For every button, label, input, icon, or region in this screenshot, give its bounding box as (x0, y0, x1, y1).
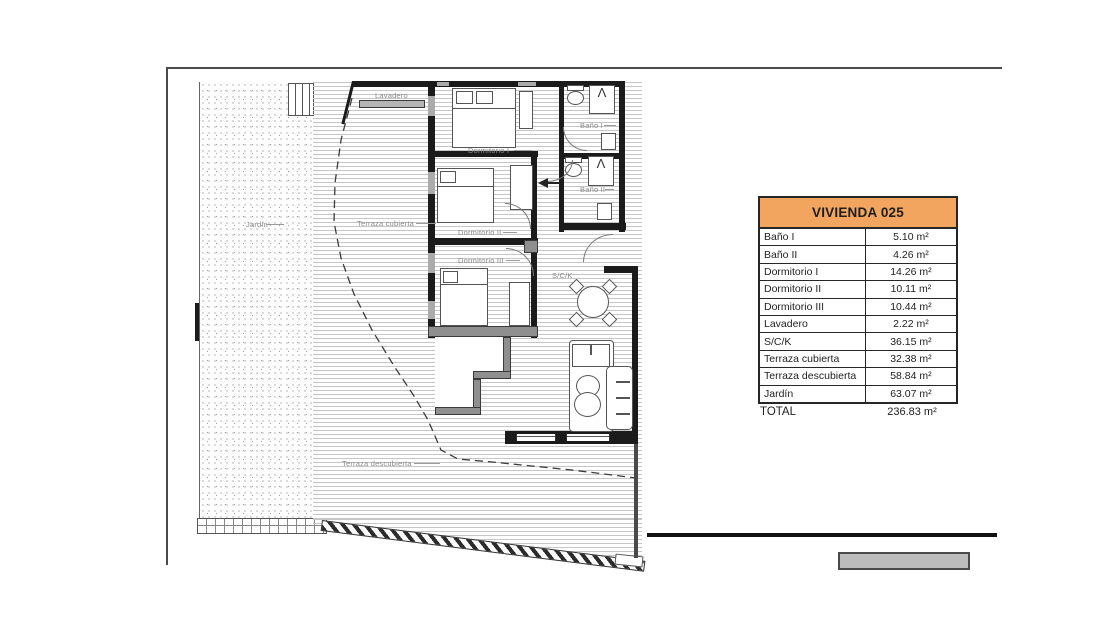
leader-line (506, 260, 520, 261)
wardrobe-bedroom3 (509, 282, 530, 326)
table-row: Baño II 4.26 m² (760, 246, 956, 263)
shower-glyph: Λ (597, 157, 606, 171)
top-wall-window-2 (518, 82, 536, 86)
shower-icon: Λ (589, 85, 615, 114)
stove-divider (590, 345, 592, 355)
site-boundary-line (647, 533, 997, 537)
laundry-counter (359, 100, 425, 108)
table-row: Terraza cubierta 32.38 m² (760, 351, 956, 368)
door-arrow-icon (538, 178, 548, 188)
room-name: Lavadero (760, 316, 866, 332)
total-label: TOTAL (758, 402, 866, 421)
fridge-shelf (616, 381, 630, 383)
table-row: Dormitorio I 14.26 m² (760, 264, 956, 281)
room-area: 58.84 m² (866, 368, 956, 384)
total-row: TOTAL 236.83 m² (758, 402, 958, 421)
room-name: Terraza cubierta (760, 351, 866, 367)
bed-sheet-line (437, 168, 494, 187)
shower-icon: Λ (588, 156, 614, 186)
terrace-right-wall (634, 444, 638, 558)
bed-sheet-line (452, 88, 516, 109)
label-laundry: Lavadero (375, 91, 408, 100)
table-row: Dormitorio II 10.11 m² (760, 281, 956, 298)
leader-line (605, 189, 614, 190)
area-table-header: VIVIENDA 025 (760, 198, 956, 229)
room-name: Dormitorio III (760, 299, 866, 315)
wardrobe-bedroom2 (510, 165, 533, 210)
table-row: Baño I 5.10 m² (760, 229, 956, 246)
sink-bathroom1 (601, 133, 616, 150)
bedroom2-3-divider-wall (428, 238, 538, 245)
bedroom3-bottom-wall (428, 326, 538, 337)
table-row: S/C/K 36.15 m² (760, 333, 956, 350)
kitchen-sink-bowl (574, 392, 601, 417)
sink-bathroom2 (597, 203, 612, 220)
label-garden: Jardín (246, 220, 268, 229)
leader-line (514, 150, 532, 151)
room-area: 14.26 m² (866, 264, 956, 280)
bathroom-block-bottom-wall (559, 223, 626, 230)
room-area: 32.38 m² (866, 351, 956, 367)
leader-line (414, 463, 440, 464)
bed-sheet-line (440, 268, 488, 285)
left-wall-window-4 (428, 301, 435, 319)
room-name: S/C/K (760, 333, 866, 349)
leader-line (604, 125, 616, 126)
label-covered-terrace: Terraza cubierta (357, 219, 414, 228)
label-bedroom1: Dormitorio I (468, 146, 509, 155)
label-bathroom1: Baño I (580, 121, 603, 130)
leader-line (503, 232, 517, 233)
label-bedroom3: Dormitorio III (458, 256, 504, 265)
top-wall-window-1 (437, 82, 449, 86)
entry-recess-wall-2 (473, 371, 511, 379)
label-living-kitchen: S/C/K (552, 271, 573, 280)
label-open-terrace: Terraza descubierta (342, 459, 412, 468)
table-row: Lavadero 2.22 m² (760, 316, 956, 333)
bottom-wall-window-2 (566, 434, 610, 441)
shower-glyph: Λ (598, 86, 607, 100)
adjacent-structure (838, 552, 970, 570)
toilet-bowl (567, 91, 584, 105)
leader-line (266, 224, 284, 225)
leader-line (416, 223, 436, 224)
fridge-shelf (616, 397, 630, 399)
total-value: 236.83 m² (866, 402, 958, 421)
room-name: Dormitorio I (760, 264, 866, 280)
fridge (606, 366, 633, 430)
left-wall-window-1 (428, 96, 435, 116)
table-row: Jardín 63.07 m² (760, 386, 956, 402)
entry-recess-wall-4 (435, 407, 481, 415)
door-arrow-stem (548, 182, 560, 184)
bottom-wall-window-1 (516, 434, 556, 441)
stove (572, 344, 610, 367)
table-row: Dormitorio III 10.44 m² (760, 299, 956, 316)
dining-table (577, 286, 609, 318)
room-name: Dormitorio II (760, 281, 866, 297)
table-row: Terraza descubierta 58.84 m² (760, 368, 956, 385)
room-area: 10.44 m² (866, 299, 956, 315)
room-area: 2.22 m² (866, 316, 956, 332)
room-name: Jardín (760, 386, 866, 402)
label-bedroom2: Dormitorio II (458, 228, 501, 237)
room-area: 36.15 m² (866, 333, 956, 349)
room-area: 10.11 m² (866, 281, 956, 297)
room-area: 4.26 m² (866, 246, 956, 262)
wall-junction-block (524, 240, 538, 253)
bedrooms-left-wall (428, 81, 435, 338)
label-bathroom2: Baño II (580, 185, 605, 194)
room-name: Baño II (760, 246, 866, 262)
room-area: 63.07 m² (866, 386, 956, 402)
room-name: Baño I (760, 229, 866, 245)
wardrobe-bedroom1 (519, 91, 533, 129)
room-name: Terraza descubierta (760, 368, 866, 384)
area-table: VIVIENDA 025 Baño I 5.10 m² Baño II 4.26… (758, 196, 958, 404)
fridge-shelf (616, 413, 630, 415)
entry-recess-area-lower (435, 337, 473, 410)
left-wall-window-2 (428, 172, 435, 194)
left-wall-window-3 (428, 253, 435, 273)
room-area: 5.10 m² (866, 229, 956, 245)
